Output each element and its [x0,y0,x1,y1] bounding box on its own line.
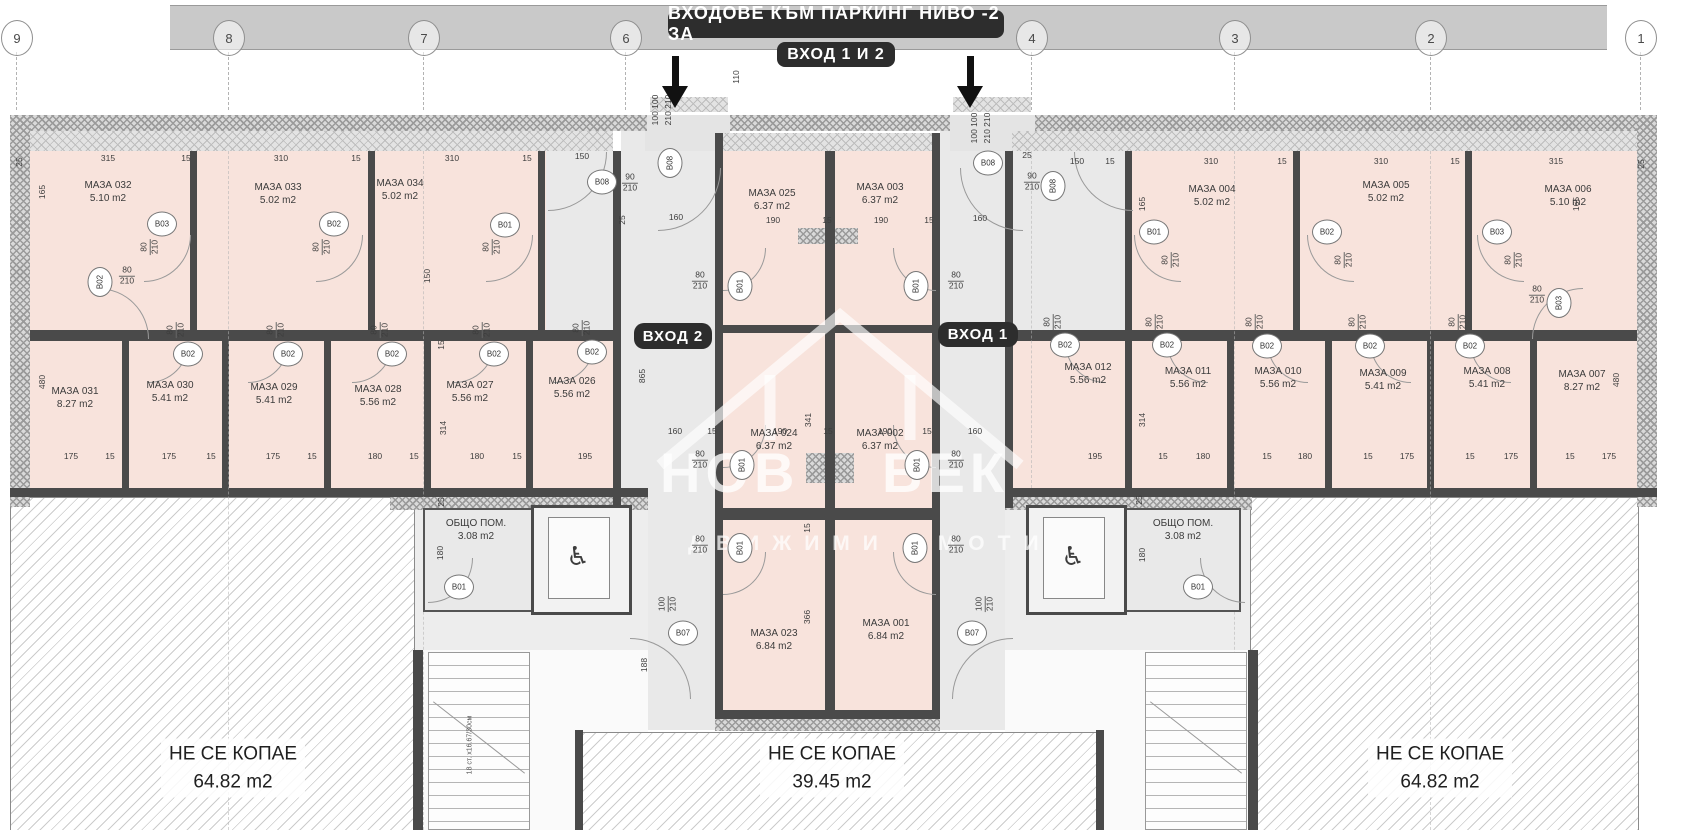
dimension-label: 80210 [482,239,503,255]
door-tag-B03: B03 [147,212,177,237]
room-label: МАЗА 0325.10 m2 [84,179,131,205]
wall [1005,488,1657,497]
wall [10,115,30,507]
door-tag-B01: B01 [904,271,929,301]
door-tag-B07: B07 [668,621,698,646]
dimension-label: 15 [922,427,931,437]
wheelchair-icon: ♿ [566,542,589,572]
room-label: МАЗА 0305.41 m2 [146,379,193,405]
dimension-label: 480 [38,375,48,389]
dimension-label: 165 [38,185,48,199]
dimension-label: 80210 [572,320,593,336]
dimension-label: 15 [1262,452,1271,462]
door-tag-B01: B01 [444,575,474,600]
dimension-label: 80210 [692,535,708,556]
dimension-label: 190 [874,216,888,226]
dimension-label: 100 100 [970,113,980,144]
wall [575,730,583,830]
wall [424,341,431,488]
floor-plan: ВХОДОВЕ КЪМ ПАРКИНГ НИВО -2 ЗА ВХОД 1 И … [0,0,1681,830]
door-tag-B08: B08 [587,170,617,195]
dimension-label: 160 [669,213,683,223]
dimension-label: 80210 [119,266,135,287]
grid-bubble: 6 [610,20,642,56]
grid-center-line [423,151,424,830]
dimension-label: 100210 [658,596,679,612]
room-label: МАЗА 0045.02 m2 [1188,183,1235,209]
dimension-label: 80210 [948,450,964,471]
dimension-label: 15 [307,452,316,462]
dimension-label: 80210 [948,271,964,292]
wall [324,341,331,488]
wall [715,133,723,710]
dimension-label: 15 [351,154,360,164]
dimension-label: 175 [1602,452,1616,462]
entrance-arrow-left [672,56,679,88]
dimension-label: 80210 [166,322,187,338]
door-tag-B01: B01 [728,533,753,563]
door-tag-B02: B02 [88,267,113,297]
dimension-label: 314 [1138,413,1148,427]
wall [1227,341,1234,488]
dimension-label: 90210 [1024,172,1040,193]
door-tag-B02: B02 [319,212,349,237]
wall [1465,151,1472,331]
dimension-label: 80210 [948,535,964,556]
dimension-label: 160 [973,214,987,224]
dimension-label: 15 [1363,452,1372,462]
grid-drop-line [16,52,17,110]
dimension-label: 310 [274,154,288,164]
room-label: МАЗА 0115.56 m2 [1165,365,1211,391]
dimension-label: 195 [578,452,592,462]
dimension-label: 80210 [370,322,391,338]
entrance-label-2: ВХОД 2 [634,323,712,349]
door-tag-B01: B01 [1139,220,1169,245]
dimension-label: 150 [1070,157,1084,167]
dimension-label: 175 [1504,452,1518,462]
room-label: МАЗА 0016.84 m2 [862,617,909,643]
door-tag-B02: B02 [1152,333,1182,358]
dimension-label: 90210 [622,173,638,194]
door-tag-B03: B03 [1482,220,1512,245]
dimension-label: 15 [1565,452,1574,462]
dimension-label: 150 [423,269,433,283]
grid-drop-line [1031,52,1032,110]
door-tag-B01: B01 [1183,575,1213,600]
dimension-label: 165 [1572,197,1582,211]
entrance-label-1: ВХОД 1 [938,322,1018,347]
door-tag-B03: B03 [1547,288,1572,318]
room-label: МАЗА 0065.10 m2 [1544,183,1591,209]
dimension-label: 366 [803,610,813,624]
dimension-label: 165 [1138,197,1148,211]
wall [538,151,545,331]
dimension-label: 341 [804,413,814,427]
grid-bubble: 4 [1016,20,1048,56]
room-label: МАЗА 0345.02 m2 [376,177,423,203]
wall [723,325,825,333]
wall [122,341,129,488]
room-label: МАЗА 0095.41 m2 [1359,367,1406,393]
room-label: МАЗА 0085.41 m2 [1463,365,1510,391]
dimension-label: 80210 [266,322,287,338]
door-tag-B02: B02 [377,342,407,367]
page-title-sub: ВХОД 1 И 2 [777,42,895,67]
room-label: МАЗА 0285.56 m2 [354,383,401,409]
door-tag-B08: B08 [658,148,683,178]
dimension-label: 80210 [1334,252,1355,268]
dimension-label: 865 [638,369,648,383]
dimension-label: 180 [436,546,446,560]
dimension-label: 15 [409,452,418,462]
wall [1293,151,1300,331]
door-tag-B02: B02 [577,340,607,365]
wall [1530,341,1537,488]
entrance-arrow-right [967,56,974,88]
wall [1035,115,1657,131]
wall [190,151,197,331]
dimension-label: 190 [878,427,892,437]
dimension-label: 315 [101,154,115,164]
entrance-arrow-head-right [957,86,983,108]
door-tag-B02: B02 [1050,333,1080,358]
wall [723,508,825,520]
wall [10,488,648,497]
dimension-label: 180 [368,452,382,462]
dimension-label: 80210 [692,271,708,292]
wall [1096,730,1104,830]
dimension-label: 25 [437,497,447,506]
door-tag-B01: B01 [490,213,520,238]
dimension-label: 80210 [312,239,333,255]
dimension-label: 15 [105,452,114,462]
grid-drop-line [423,52,424,110]
dimension-label: 190 [773,427,787,437]
dimension-label: 15 [522,154,531,164]
dimension-label: 15 [512,452,521,462]
wall [526,341,533,488]
room-label: МАЗА 0275.56 m2 [446,379,493,405]
dimension-label: 15 [437,340,447,349]
dimension-label: 15 [181,154,190,164]
wall [715,718,940,731]
dimension-label: 315 [1549,157,1563,167]
grid-bubble: 2 [1415,20,1447,56]
wall [30,131,613,151]
dimension-label: 160 [668,427,682,437]
dimension-label: 15 [823,427,832,437]
stairs-left [428,652,530,830]
dimension-label: 195 [1088,452,1102,462]
dimension-label: 100210 [975,596,996,612]
dimension-label: 15 [822,216,831,226]
dimension-label: 188 [640,658,650,672]
dimension-label: 80210 [1043,314,1064,330]
dimension-label: 310 [445,154,459,164]
dimension-label: 15 [924,216,933,226]
grid-drop-line [1640,52,1641,110]
grid-bubble: 9 [1,20,33,56]
wall [1125,341,1132,488]
dimension-label: 15 [1465,452,1474,462]
grid-drop-line [1430,52,1431,110]
dimension-label: 180 [1298,452,1312,462]
dimension-label: 80210 [692,450,708,471]
wall [1637,115,1657,507]
room-label: МАЗА 0055.02 m2 [1362,179,1409,205]
dimension-label: 15 [1277,157,1286,167]
room-label: МАЗА 0318.27 m2 [51,385,98,411]
grid-bubble: 3 [1219,20,1251,56]
dimension-label: 15 [206,452,215,462]
dimension-label: 175 [266,452,280,462]
stairs-note: 18 ст. х16.67/30см [467,716,474,775]
dimension-label: 480 [1612,373,1622,387]
dimension-label: 175 [64,452,78,462]
door-tag-B08: B08 [973,151,1003,176]
common-room-label: ОБЩО ПОМ.3.08 m2 [1153,517,1213,543]
dimension-label: 80210 [1145,314,1166,330]
door-tag-B01: B01 [730,450,755,480]
stair-run-line [1150,702,1242,774]
wall [10,115,647,131]
room-label: МАЗА 0236.84 m2 [750,627,797,653]
dimension-label: 210 210 [983,113,993,144]
common-room-label: ОБЩО ПОМ.3.08 m2 [446,517,506,543]
no-dig-label: НЕ СЕ КОПАЕ64.82 m2 [161,738,305,797]
dimension-label: 15 [707,427,716,437]
door-tag-B02: B02 [1455,334,1485,359]
room-label: МАЗА 0265.56 m2 [548,375,595,401]
dimension-label: 180 [1196,452,1210,462]
dimension-label: 180 [1138,548,1148,562]
room-label: МАЗА 0335.02 m2 [254,181,301,207]
grid-center-line [1031,151,1032,488]
wall [1012,131,1637,151]
dimension-label: 25 [1135,495,1145,504]
no-dig-label: НЕ СЕ КОПАЕ64.82 m2 [1368,738,1512,797]
door-tag-B02: B02 [1252,334,1282,359]
dimension-label: 314 [439,421,449,435]
dimension-label: 150 [575,152,589,162]
wheelchair-icon: ♿ [1061,542,1084,572]
wall [613,151,621,508]
dimension-label: 80210 [1504,252,1525,268]
door-tag-B08: B08 [1041,171,1066,201]
room-label: МАЗА 0125.56 m2 [1064,361,1111,387]
wall [730,115,950,131]
dimension-label: 310 [1204,157,1218,167]
dimension-label: 180 [470,452,484,462]
dimension-label: 15 [803,523,813,532]
grid-drop-line [625,52,626,110]
grid-drop-line [1234,52,1235,110]
wall [1248,650,1258,830]
door-tag-B02: B02 [479,342,509,367]
dimension-label: 160 [968,427,982,437]
door-tag-B02: B02 [1355,334,1385,359]
grid-bubble: 1 [1625,20,1657,56]
door-tag-B01: B01 [728,271,753,301]
grid-bubble: 8 [213,20,245,56]
dimension-label: 80210 [1245,314,1266,330]
grid-drop-line [228,52,229,110]
dimension-label: 15 [1105,157,1114,167]
no-dig-label: НЕ СЕ КОПАЕ39.45 m2 [760,738,904,797]
entrance-arrow-head-left [662,86,688,108]
dimension-label: 25 [1022,151,1031,161]
wall [715,710,940,719]
dimension-label: 25 [15,157,25,166]
dimension-label: 15 [1450,157,1459,167]
room-label: МАЗА 0105.56 m2 [1254,365,1301,391]
dimension-label: 110 [732,70,742,84]
stair-run-line [433,702,525,774]
page-title: ВХОДОВЕ КЪМ ПАРКИНГ НИВО -2 ЗА [668,10,1004,38]
door-tag-B02: B02 [273,342,303,367]
dimension-label: 25 [618,215,628,224]
door-tag-B02: B02 [173,342,203,367]
wall [1325,341,1332,488]
dimension-label: 80210 [1529,285,1545,306]
wall [413,650,423,830]
dimension-label: 100 100 [651,95,661,126]
door-tag-B07: B07 [957,621,987,646]
room-label: МАЗА 0295.41 m2 [250,381,297,407]
wall [368,151,375,331]
grid-center-line [1430,151,1431,830]
room-label: МАЗА 0078.27 m2 [1558,368,1605,394]
dimension-label: 80210 [472,322,493,338]
wall [717,133,932,151]
dimension-label: 80210 [1348,314,1369,330]
dimension-label: 80210 [140,239,161,255]
grid-bubble: 7 [408,20,440,56]
door-tag-B01: B01 [903,533,928,563]
stairs-right [1145,652,1247,830]
dimension-label: 175 [162,452,176,462]
door-tag-B02: B02 [1312,220,1342,245]
dimension-label: 15 [1158,452,1167,462]
room-label: МАЗА 0256.37 m2 [748,187,795,213]
dimension-label: 80210 [1161,252,1182,268]
wall [835,508,932,520]
dimension-label: 175 [1400,452,1414,462]
dimension-label: 25 [1637,159,1647,168]
grid-center-line [228,151,229,830]
door-tag-B01: B01 [905,450,930,480]
room-label: МАЗА 0036.37 m2 [856,181,903,207]
wall [835,325,932,333]
dimension-label: 190 [766,216,780,226]
dimension-label: 80210 [1448,314,1469,330]
dimension-label: 310 [1374,157,1388,167]
